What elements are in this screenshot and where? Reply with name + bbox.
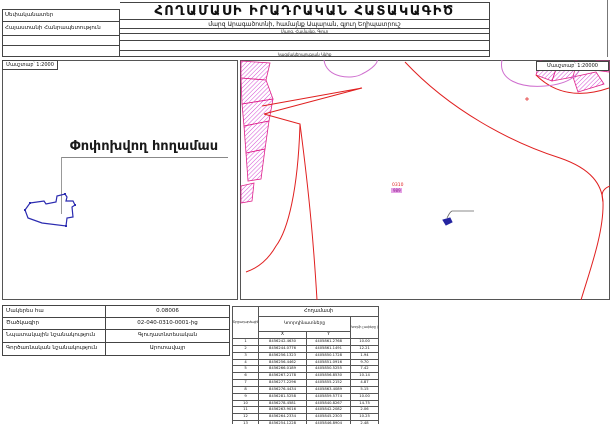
coords-row: 118456263.90164405842.20822.06 <box>233 407 379 414</box>
code-label: Ծածկագիր <box>3 318 106 330</box>
parcel-subcode-label: 989 <box>393 188 401 193</box>
coords-row: 48456256.44624405851.09169.70 <box>233 359 379 366</box>
owner-empty-row-1 <box>3 36 119 46</box>
owner-empty-row-2 <box>3 46 119 55</box>
overview-map-canvas: 0310 989 <box>240 60 610 300</box>
coords-row: 28456244.07764405861.149112.21 <box>233 345 379 352</box>
coords-row: 98456281.52584405859.577410.00 <box>233 393 379 400</box>
owner-label: Սեփականատեր <box>3 10 119 22</box>
page-right-edge <box>607 0 608 57</box>
coords-table-title: Հողամասի <box>259 307 379 317</box>
header-empty-row-1 <box>120 33 489 40</box>
overview-map-scale: Մասշտաբ՝ 1:20000 <box>536 61 609 71</box>
coords-row: 88456276.44344405863.40895.15 <box>233 386 379 393</box>
owner-block: Սեփականատեր Հայաստանի Հանրապետություն <box>2 9 120 57</box>
coords-row: 78456277.22964405855.21524.87 <box>233 380 379 387</box>
y-column-label: Y <box>307 332 351 339</box>
coords-row: 38456256.13234405850.17281.94 <box>233 352 379 359</box>
point-number-header: Շրջադարձային կետերի համար <box>233 307 259 339</box>
changing-plot-label: Փոփոխվող հողամաս <box>58 139 230 154</box>
coordinates-table-wrap: Շրջադարձային կետերի համար Հողամասի Կոորդ… <box>232 306 378 424</box>
header-empty-row-2 <box>120 40 489 50</box>
red-boundary-lines <box>246 62 610 300</box>
coords-table-body: 18456242.46304405861.276810.0028456244.0… <box>233 339 379 424</box>
purpose-label: Նպատակային նշանակություն <box>3 330 106 342</box>
x-column-label: X <box>259 332 307 339</box>
plot-vertex-ticks <box>24 193 76 227</box>
coords-row: 128456264.23344405845.230310.25 <box>233 414 379 421</box>
title-block: ՀՈՂԱՄԱՍԻ ԻՐԱԴՐԱԿԱՆ ՀԱՏԱԿԱԳԻԾ մարզ Արագած… <box>120 2 490 57</box>
coordinates-table: Շրջադարձային կետերի համար Հողամասի Կոորդ… <box>232 306 379 424</box>
page-title: ՀՈՂԱՄԱՍԻ ԻՐԱԴՐԱԿԱՆ ՀԱՏԱԿԱԳԻԾ <box>120 3 489 19</box>
coords-header: Կոորդինատները <box>259 317 351 332</box>
detail-map-scale: Մասշտաբ՝ 1:2000 <box>2 60 58 70</box>
changing-plot-polygon <box>25 194 75 226</box>
detail-map-canvas <box>2 60 238 300</box>
purpose-value: Գյուղատնտեսական <box>106 330 229 342</box>
target-plot-marker <box>443 218 452 225</box>
area-label: Մակերես հա <box>3 306 106 318</box>
side-length-header: Կողմի չափերը (մ) <box>351 317 379 339</box>
coords-row: 18456242.46304405861.276810.00 <box>233 339 379 346</box>
parcel-code-label: 0310 <box>392 182 404 188</box>
plot-attributes-table: Մակերես հա 0.08006 Ծածկագիր 02-040-0310-… <box>2 305 230 356</box>
stamp-label: Կազմակերպության Կնիք <box>120 50 489 58</box>
function-label: Գործառնական նշանակություն <box>3 343 106 355</box>
area-value: 0.08006 <box>106 306 229 318</box>
target-plot-leader <box>447 211 474 218</box>
coords-row: 108456278.45814405840.826714.75 <box>233 400 379 407</box>
coords-row: 138456254.12284405846.89042.48 <box>233 421 379 424</box>
owner-value: Հայաստանի Հանրապետություն <box>3 22 119 36</box>
coords-row: 68456267.21784405856.853010.14 <box>233 373 379 380</box>
location-value: մարզ Արագածոտնի, համայնք Ապարան, գյուղ Ե… <box>120 19 489 28</box>
function-value: Արոտավայր <box>106 343 229 355</box>
cadastral-plan-sheet: Սեփականատեր Հայաստանի Հանրապետություն ՀՈ… <box>0 0 612 424</box>
hatched-parcels-left <box>241 61 273 203</box>
code-value: 02-040-0310-0001-ից <box>106 318 229 330</box>
coords-row: 58456266.01894405850.52557.42 <box>233 366 379 373</box>
